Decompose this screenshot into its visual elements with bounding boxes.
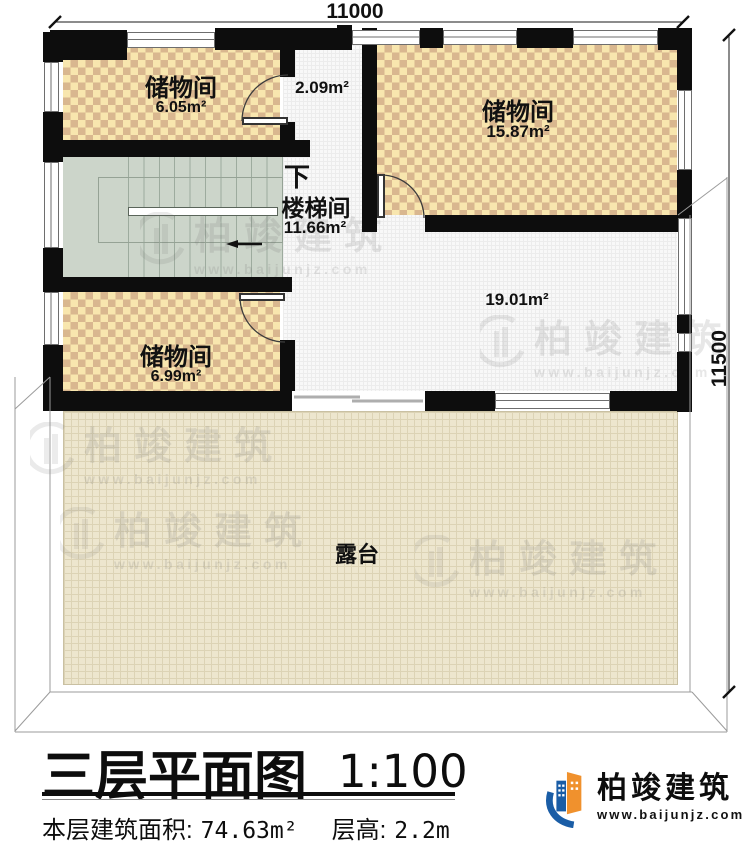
company-logo-icon [542, 766, 590, 828]
room-area-stairwell: 11.66m² [284, 219, 346, 237]
wall-segment [280, 45, 295, 77]
wall-segment [43, 391, 292, 411]
room-name-stairwell: 楼梯间 [282, 196, 351, 220]
company-website: www.baijunjz.com [597, 807, 744, 822]
room-area-hall: 19.01m² [485, 291, 548, 309]
room-area-storage-top-left: 6.05m² [156, 100, 207, 117]
wall-segment [362, 28, 377, 232]
window [495, 393, 610, 409]
wall-segment [280, 122, 295, 144]
door-leaf [242, 117, 288, 125]
door-leaf [239, 293, 285, 301]
window [44, 162, 59, 248]
title-underline-thin [42, 799, 455, 800]
sliding-door [294, 397, 423, 401]
wall-segment [43, 277, 292, 292]
staircase [63, 157, 283, 277]
wall-segment [677, 170, 692, 218]
stair-down-label: 下 [284, 164, 310, 191]
stair-handrail [128, 207, 278, 216]
wall-segment [517, 28, 573, 48]
window [678, 333, 692, 352]
dimension-label-top: 11000 [326, 0, 383, 24]
company-logo: 柏竣建筑 www.baijunjz.com [542, 766, 744, 828]
room-name-storage-bottom-left: 储物间 [140, 345, 212, 370]
wall-segment [43, 140, 310, 157]
wall-segment [43, 32, 63, 62]
floor-height-label: 层高: [332, 810, 387, 845]
floor-area-value: 74.63m² [201, 818, 298, 844]
window [573, 30, 658, 45]
wall-segment [610, 391, 692, 411]
floor-plan-sheet: 柏竣建筑www.baijunjz.com 柏竣建筑www.baijunjz.co… [0, 0, 750, 849]
floor-area-label: 本层建筑面积: [42, 810, 193, 845]
window [443, 30, 517, 45]
sheet-scale: 1:100 [338, 745, 468, 798]
wall-segment [337, 25, 352, 50]
window [44, 62, 59, 112]
room-name-terrace: 露台 [335, 543, 379, 566]
window [352, 30, 420, 45]
room-area-corridor: 2.09m² [295, 79, 349, 97]
window [678, 90, 692, 170]
room-name-storage-top-left: 储物间 [145, 76, 217, 101]
room-area-storage-top-right: 15.87m² [486, 123, 549, 141]
company-name: 柏竣建筑 [597, 772, 744, 805]
sheet-info: 本层建筑面积: 74.63m² 层高: 2.2m [42, 810, 450, 845]
door-leaf [377, 174, 385, 218]
wall-segment [420, 28, 443, 48]
window [678, 218, 692, 315]
wall-segment [425, 391, 495, 411]
wall-segment [280, 340, 295, 391]
window [44, 292, 59, 345]
wall-segment [677, 45, 692, 90]
title-underline [42, 792, 455, 796]
wall-segment [677, 315, 692, 333]
dimension-label-right: 11500 [708, 330, 732, 387]
floor-height-value: 2.2m [394, 818, 449, 844]
wall-segment [425, 215, 692, 232]
window [127, 32, 215, 48]
room-area-storage-bottom-left: 6.99m² [151, 369, 202, 386]
